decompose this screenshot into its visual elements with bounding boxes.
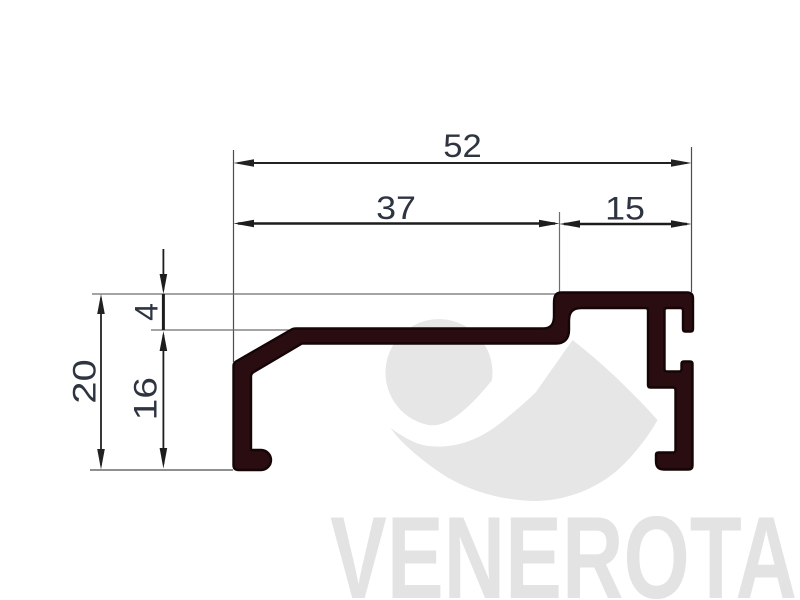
svg-text:4: 4 <box>129 303 165 321</box>
svg-text:20: 20 <box>66 359 102 404</box>
svg-text:15: 15 <box>605 191 645 227</box>
svg-text:52: 52 <box>443 129 481 165</box>
svg-text:VENEROTA: VENEROTA <box>330 492 797 600</box>
svg-text:16: 16 <box>128 377 164 420</box>
svg-text:37: 37 <box>376 191 416 227</box>
